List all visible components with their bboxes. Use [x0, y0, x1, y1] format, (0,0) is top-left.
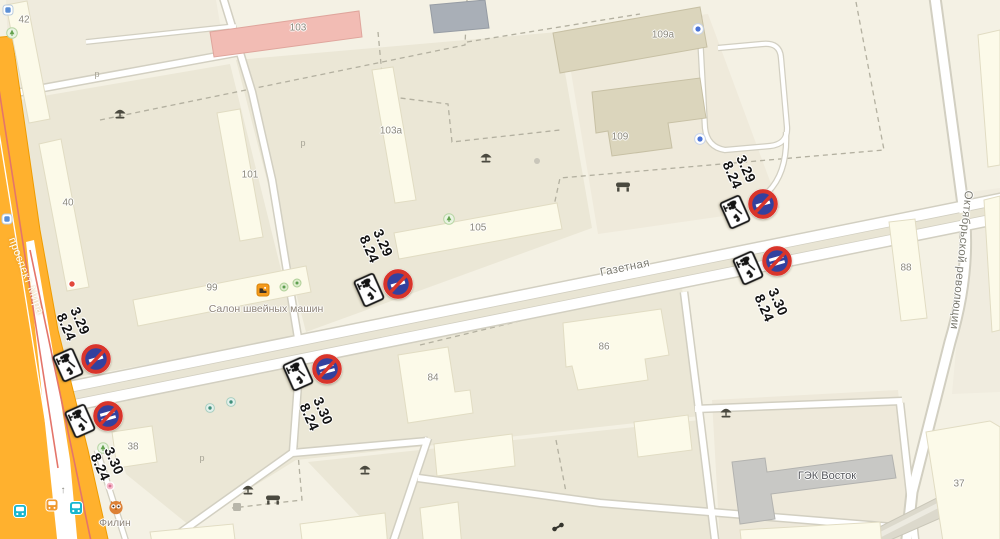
tree-icon [113, 108, 127, 121]
building-number: 38 [127, 442, 138, 453]
building-number: 84 [427, 373, 438, 384]
building-number: 103а [380, 126, 402, 137]
green-poi-icon[interactable] [443, 213, 455, 225]
street-label-oktyabrskoy-revolyutsii: Октябрьской революции [948, 190, 975, 330]
labels-overlay: ГазетнаяОктябрьской революциипроспект Ми… [0, 0, 1000, 539]
mini-green-icon [280, 283, 289, 292]
no-parking-sign-3-29[interactable] [81, 344, 112, 375]
building-number: 37 [953, 479, 964, 490]
road-sign-label: 3.298.24 [357, 227, 396, 265]
road-sign-label: 3.298.24 [720, 153, 759, 191]
transit-icon[interactable] [3, 5, 14, 16]
poi-label: Филин [99, 517, 131, 529]
street-label-gazetnaya: Газетная [599, 257, 651, 279]
street-label-prospekt-mira: проспект Мира [6, 236, 46, 316]
parking-mark: р [300, 138, 305, 148]
building-number: 103 [290, 23, 307, 34]
tow-truck-plate-icon[interactable] [281, 356, 315, 393]
road-sign-label: 3.308.24 [88, 445, 127, 483]
red-poi-icon[interactable] [68, 280, 77, 289]
bench-icon [266, 495, 281, 505]
building-number: 40 [62, 198, 73, 209]
bus-icon[interactable] [13, 504, 27, 518]
service-icon[interactable] [694, 133, 706, 145]
gray-square-icon [233, 503, 242, 512]
poi-label: Салон швейных машин [209, 303, 324, 315]
no-parking-sign-3-29[interactable] [748, 189, 779, 220]
teal-poi-icon[interactable] [226, 397, 236, 407]
tree-icon [358, 464, 372, 477]
tree-icon [479, 152, 493, 165]
fitness-icon[interactable] [552, 522, 565, 532]
transit-icon[interactable] [2, 214, 13, 225]
parking-mark: р [94, 69, 99, 79]
building-number: 99 [206, 283, 217, 294]
road-sign-label: 3.308.24 [297, 395, 336, 433]
tow-truck-plate-icon[interactable] [731, 250, 765, 287]
no-parking-sign-3-29[interactable] [383, 269, 414, 300]
bench-icon [616, 182, 631, 192]
bus-icon[interactable] [69, 501, 83, 515]
tow-truck-plate-icon[interactable] [352, 272, 386, 309]
tree-icon [719, 407, 733, 420]
no-parking-sign-3-30[interactable] [762, 246, 793, 277]
building-number: 109а [652, 30, 674, 41]
pink-poi-icon[interactable] [105, 481, 115, 491]
poi-label: ГЭК Восток [798, 470, 856, 482]
building-number: 42 [18, 15, 29, 26]
sewing-shop-icon[interactable] [257, 284, 270, 297]
no-parking-sign-3-30[interactable] [93, 401, 124, 432]
gray-dot-icon [534, 158, 541, 165]
building-number: 101 [242, 170, 259, 181]
road-sign-label: 3.308.24 [752, 286, 791, 324]
owl-icon[interactable] [108, 499, 124, 515]
building-number: 105 [470, 223, 487, 234]
map-canvas[interactable]: ГазетнаяОктябрьской революциипроспект Ми… [0, 0, 1000, 539]
tree-icon [241, 484, 255, 497]
road-sign-label: 3.298.24 [54, 305, 93, 343]
green-poi-icon[interactable] [6, 27, 18, 39]
no-parking-sign-3-30[interactable] [312, 354, 343, 385]
building-number: 88 [900, 263, 911, 274]
teal-poi-icon[interactable] [205, 403, 215, 413]
parking-mark: р [199, 453, 204, 463]
arrow-up-icon: ↑ [61, 486, 66, 496]
trolleybus-icon[interactable] [46, 499, 59, 512]
building-number: 109 [612, 132, 629, 143]
service-icon[interactable] [692, 23, 704, 35]
mini-green-icon [293, 279, 302, 288]
building-number: 86 [598, 342, 609, 353]
